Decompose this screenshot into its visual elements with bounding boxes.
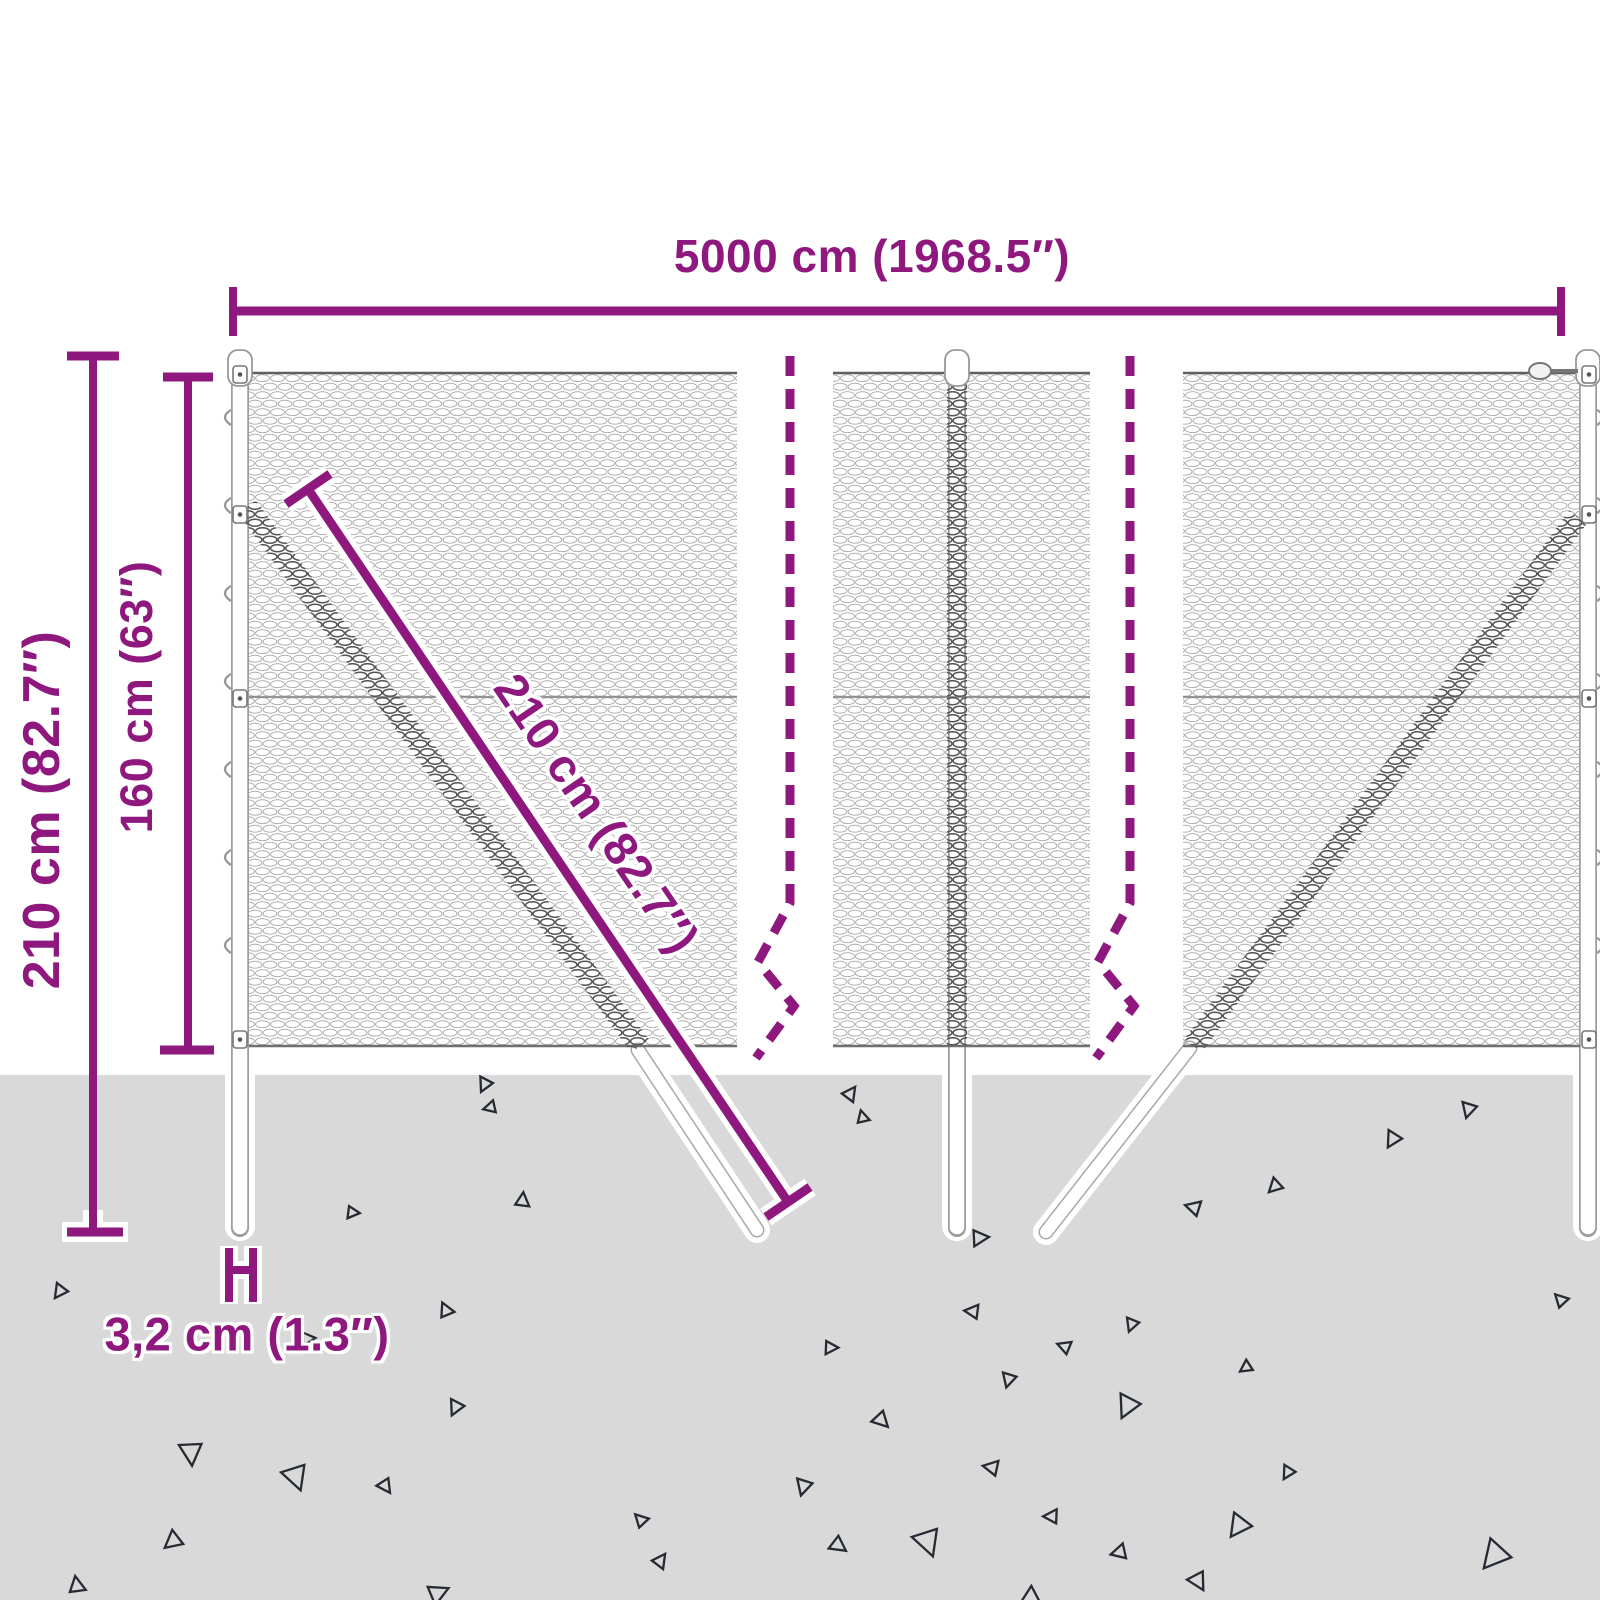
tension-hook-icon	[225, 410, 231, 425]
tension-hook-icon	[225, 498, 231, 513]
mesh-panel-right	[1183, 372, 1580, 1047]
post-clamp-icon	[1582, 1031, 1596, 1048]
post-clamp-icon	[233, 506, 247, 523]
total-height-dimension-label: 210 cm (82.7″)	[12, 631, 72, 990]
width-dimension-line	[230, 287, 1564, 336]
tension-hook-icon	[225, 850, 231, 865]
break-line-left	[756, 356, 794, 1058]
post-clamp-icon	[1582, 366, 1596, 383]
fence-dimension-diagram: 5000 cm (1968.5″) 210 cm (82.7″) 160 cm …	[0, 0, 1600, 1600]
tension-hook-icon	[225, 762, 231, 777]
middle-post-cap	[945, 350, 969, 386]
post-diameter-label: 3,2 cm (1.3″)	[104, 1307, 389, 1362]
tension-hook-icon	[225, 586, 231, 601]
tension-hook-icon	[225, 674, 231, 689]
post-clamp-icon	[1582, 690, 1596, 707]
post-clamp-icon	[1582, 506, 1596, 523]
post-clamp-icon	[233, 690, 247, 707]
post-clamp-icon	[233, 1031, 247, 1048]
tension-hook-icon	[225, 938, 231, 953]
width-dimension-label: 5000 cm (1968.5″)	[674, 229, 1070, 283]
mesh-height-dimension-line	[160, 377, 214, 1050]
post-clamp-icon	[233, 366, 247, 383]
break-line-right	[1096, 356, 1134, 1058]
mesh-height-dimension-label: 160 cm (63″)	[111, 561, 163, 834]
middle-post-behind-mesh	[947, 373, 967, 1046]
